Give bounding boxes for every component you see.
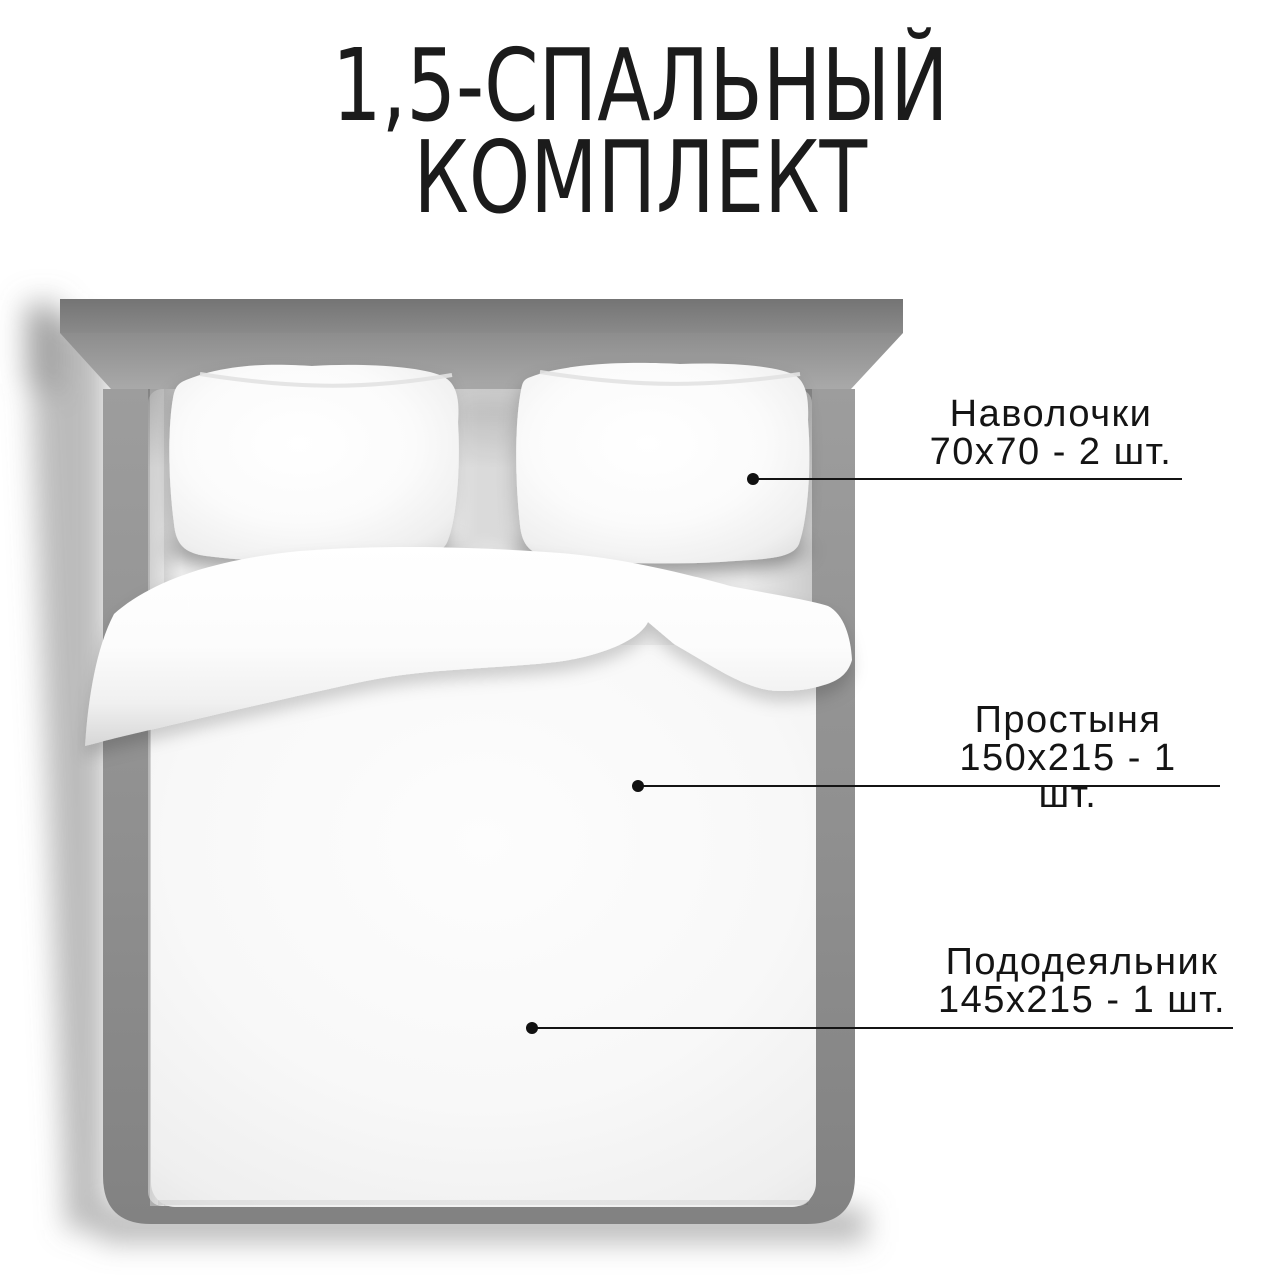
pillowcases-leader-line <box>753 478 1182 480</box>
pillow-left <box>169 365 459 562</box>
sheet-label: Простыня <box>928 702 1208 739</box>
callout-duvet-cover-text: Пододеяльник 145х215 - 1 шт. <box>922 944 1242 1019</box>
pillowcases-size: 70х70 - 2 шт. <box>916 434 1186 471</box>
pillowcases-label: Наволочки <box>916 396 1186 433</box>
sheet-leader-line <box>638 785 1220 787</box>
callout-pillowcases-text: Наволочки 70х70 - 2 шт. <box>916 396 1186 471</box>
callout-sheet-text: Простыня 150х215 - 1 шт. <box>928 702 1208 814</box>
duvet-cover-leader-dot <box>526 1022 538 1034</box>
duvet-cover-leader-line <box>532 1027 1233 1029</box>
duvet <box>151 645 816 1207</box>
infographic-card: 1,5-СПАЛЬНЫЙ КОМПЛЕКТ Наволочки 70х70 - … <box>0 0 1280 1280</box>
duvet-cover-label: Пододеяльник <box>922 944 1242 981</box>
title-line-2: КОМПЛЕКТ <box>332 132 949 224</box>
page-title: 1,5-СПАЛЬНЫЙ КОМПЛЕКТ <box>0 40 1280 224</box>
sheet-leader-dot <box>632 780 644 792</box>
pillow-right <box>516 363 809 564</box>
sheet-size: 150х215 - 1 шт. <box>928 740 1208 814</box>
pillowcases-leader-dot <box>747 473 759 485</box>
duvet-cover-size: 145х215 - 1 шт. <box>922 982 1242 1019</box>
